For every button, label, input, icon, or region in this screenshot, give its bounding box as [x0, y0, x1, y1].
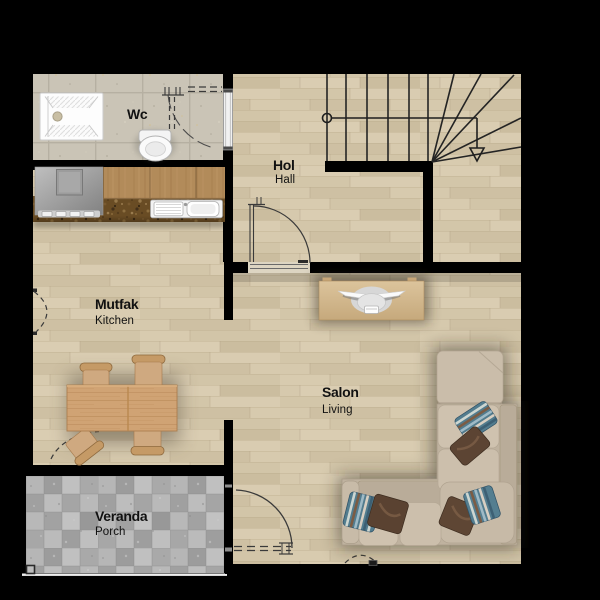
svg-text:Wc: Wc	[127, 106, 148, 122]
svg-text:Living: Living	[322, 404, 353, 416]
svg-text:Hall: Hall	[275, 174, 295, 186]
svg-text:Veranda: Veranda	[95, 508, 148, 524]
svg-text:Salon: Salon	[322, 384, 359, 400]
svg-text:Mutfak: Mutfak	[95, 296, 139, 312]
svg-text:Hol: Hol	[273, 157, 295, 173]
svg-text:Porch: Porch	[95, 526, 126, 538]
svg-text:Kitchen: Kitchen	[95, 315, 134, 327]
